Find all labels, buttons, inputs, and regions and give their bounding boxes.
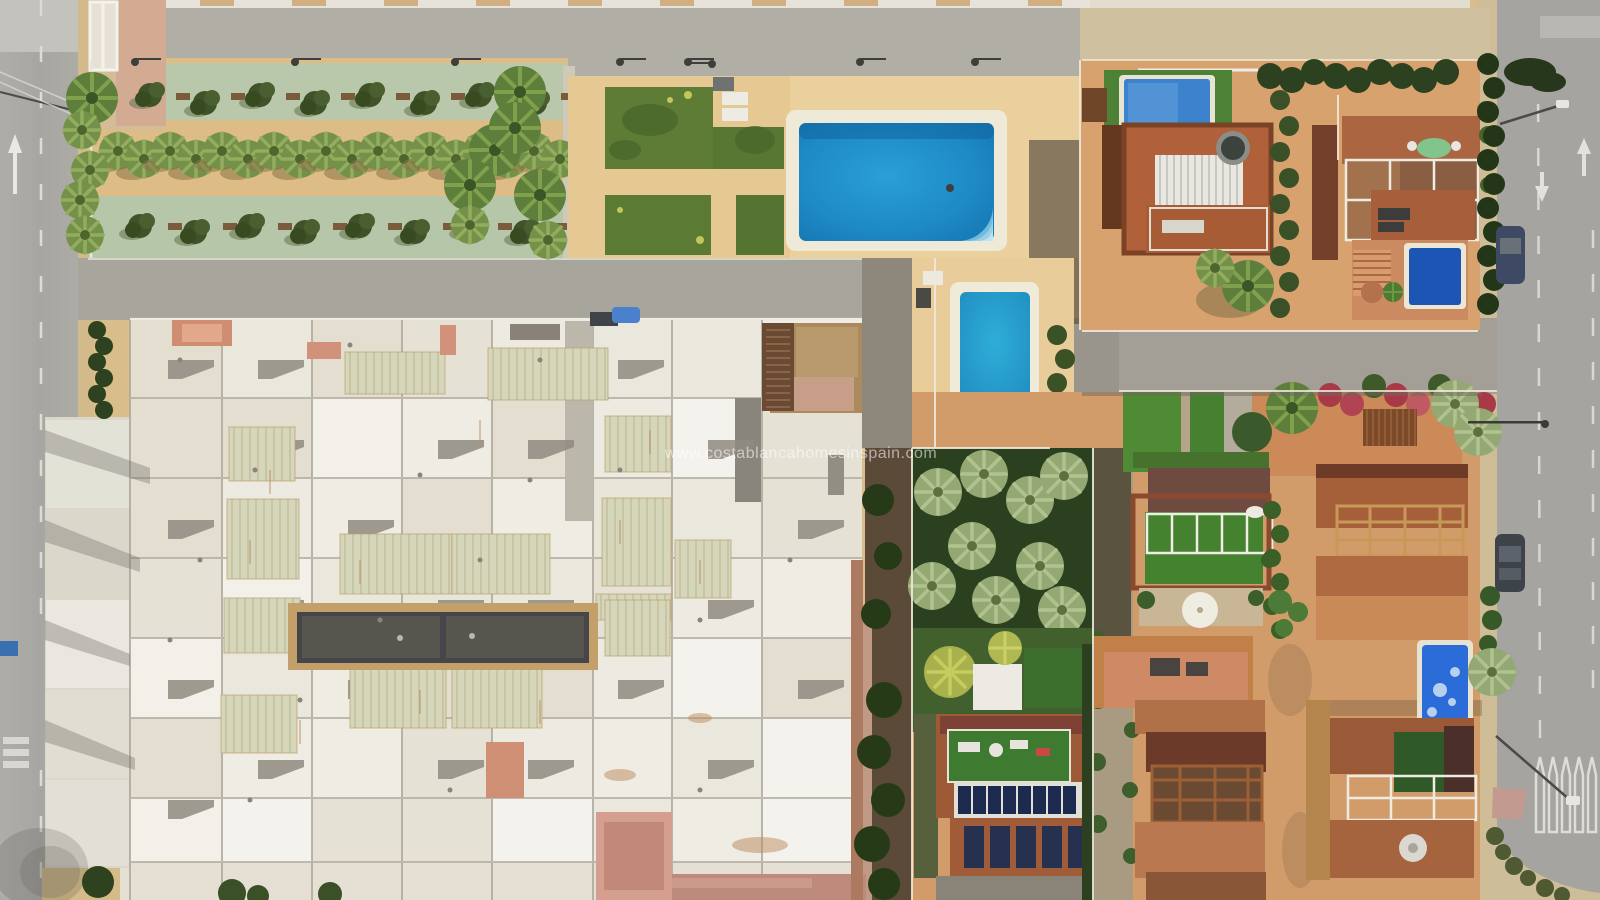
svg-text:www.costablancahomesinspain.co: www.costablancahomesinspain.com bbox=[664, 445, 938, 462]
